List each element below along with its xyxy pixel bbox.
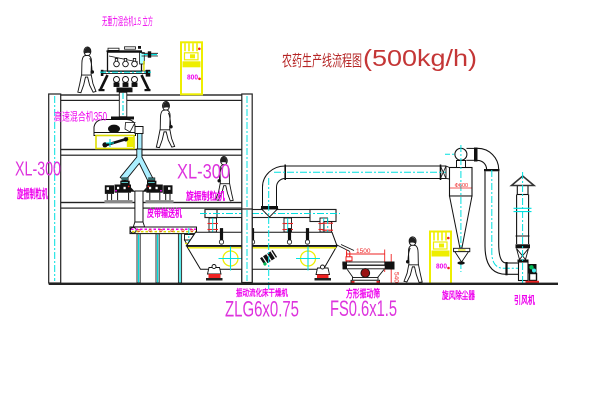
svg-text:XL-300: XL-300 — [15, 159, 61, 181]
svg-text:Φ600: Φ600 — [455, 183, 469, 189]
svg-text:无重力混合机1.5 立方: 无重力混合机1.5 立方 — [102, 14, 153, 28]
svg-text:ZLG6x0.75: ZLG6x0.75 — [225, 297, 299, 322]
svg-text:旋振制粒机: 旋振制粒机 — [16, 186, 48, 201]
svg-text:皮带输送机: 皮带输送机 — [146, 207, 182, 220]
svg-text:农药生产线流程图: 农药生产线流程图 — [282, 52, 362, 70]
svg-text:FS0.6x1.5: FS0.6x1.5 — [330, 296, 397, 321]
svg-text:引风机: 引风机 — [514, 294, 535, 307]
svg-text:540: 540 — [393, 272, 400, 283]
svg-text:(500kg/h): (500kg/h) — [363, 45, 477, 71]
svg-text:高速混合机350: 高速混合机350 — [54, 110, 107, 124]
svg-text:1500: 1500 — [356, 248, 371, 255]
svg-text:旋风除尘器: 旋风除尘器 — [441, 289, 475, 302]
svg-text:旋振制粒机: 旋振制粒机 — [185, 190, 225, 203]
svg-text:XL-300: XL-300 — [177, 161, 230, 184]
